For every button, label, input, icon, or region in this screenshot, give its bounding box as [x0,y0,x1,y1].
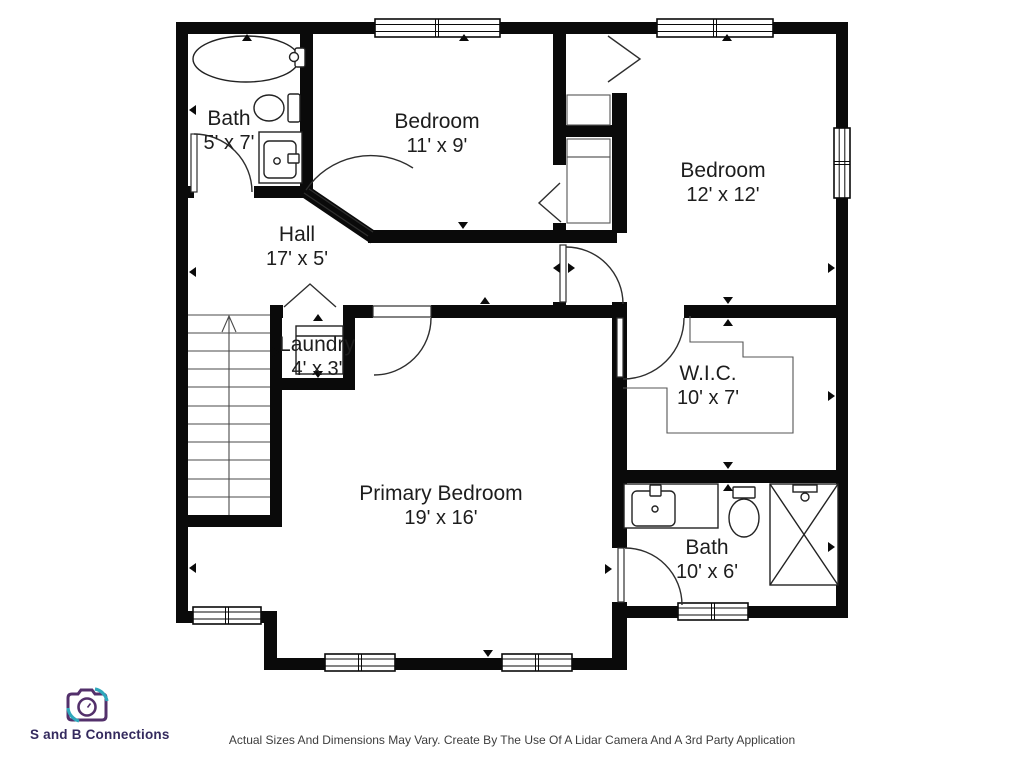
wall [684,305,848,318]
closet-door-chevron-icon [539,183,561,222]
room-dimensions: 10' x 6' [676,561,738,585]
room-label-bath-upper: Bath 5' x 7' [204,107,255,155]
wall [612,93,627,233]
dimension-tick [828,263,835,273]
window-symbol [325,654,395,671]
room-label-bedroom-12x12: Bedroom 12' x 12' [680,159,765,207]
disclaimer-text: Actual Sizes And Dimensions May Vary. Cr… [0,733,1024,747]
dimension-tick [568,263,575,273]
wall [176,22,188,623]
dimension-tick [723,319,733,326]
room-dimensions: 12' x 12' [680,184,765,208]
shower-icon [770,484,838,585]
room-dimensions: 11' x 9' [394,135,479,159]
dimension-tick [553,263,560,273]
window-symbol [193,607,261,624]
stairs-up-icon [188,315,270,515]
dimension-tick [723,297,733,304]
room-dimensions: 19' x 16' [359,507,522,531]
floor-plan-page: Bath 5' x 7' Bedroom 11' x 9' Bedroom 12… [0,0,1024,768]
wall [612,470,848,483]
wall [368,230,617,243]
dimension-tick [723,484,733,491]
room-label-primary-bedroom: Primary Bedroom 19' x 16' [359,482,522,530]
dimension-tick [828,391,835,401]
room-name: Hall [266,223,328,248]
bathtub-icon [193,36,305,82]
door-swing [617,318,684,379]
window-symbol [502,654,572,671]
dimension-tick [313,314,323,321]
wall [431,305,566,318]
closet-door-chevron-icon [284,284,336,307]
room-name: Primary Bedroom [359,482,522,507]
window-symbol [834,128,850,198]
room-label-hall: Hall 17' x 5' [266,223,328,271]
dimension-tick [605,564,612,574]
window-symbol [678,603,748,620]
room-dimensions: 5' x 7' [204,132,255,156]
room-label-bedroom-11x9: Bedroom 11' x 9' [394,110,479,158]
dimension-tick [483,650,493,657]
room-label-wic: W.I.C. 10' x 7' [677,362,739,410]
dimension-tick [723,462,733,469]
wall [612,602,627,670]
toilet-icon [254,94,300,122]
closet-door-chevron-icon [608,36,640,82]
room-label-laundry: Laundry 4' x 3' [279,333,355,381]
room-dimensions: 10' x 7' [677,387,739,411]
room-name: Bedroom [394,110,479,135]
room-label-bath-lower: Bath 10' x 6' [676,536,738,584]
room-name: W.I.C. [677,362,739,387]
dimension-tick [458,222,468,229]
wall [566,305,612,318]
room-name: Bath [676,536,738,561]
dimension-tick [189,267,196,277]
room-dimensions: 17' x 5' [266,248,328,272]
floor-plan-drawing [0,0,1024,768]
room-name: Bedroom [680,159,765,184]
door-swing [618,548,682,605]
room-name: Laundry [279,333,355,358]
window-symbol [657,19,773,37]
door-swing [373,306,431,375]
sink-icon [624,484,718,528]
window-symbol [375,19,500,37]
dimension-tick [189,563,196,573]
dimension-tick [480,297,490,304]
sink-icon [259,132,302,183]
door-swing [560,245,623,304]
wall [553,22,566,165]
camera-icon [64,686,110,727]
room-dimensions: 4' x 3' [279,358,355,382]
wall [176,515,282,527]
wall [553,223,566,243]
dimension-tick [189,105,196,115]
room-name: Bath [204,107,255,132]
toilet-icon [729,487,759,537]
